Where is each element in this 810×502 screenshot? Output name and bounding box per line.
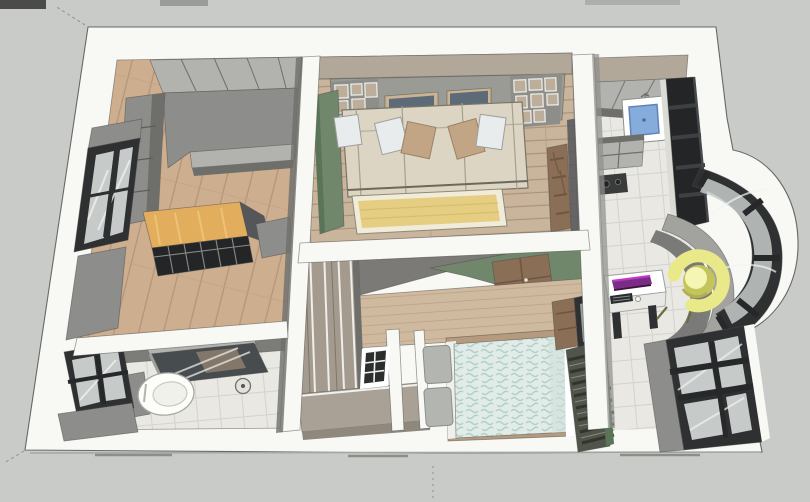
bed-pillow bbox=[424, 387, 454, 427]
floorplan-canvas bbox=[0, 0, 810, 502]
small-grid-window bbox=[360, 346, 390, 389]
kitchen bbox=[594, 55, 708, 232]
living-room bbox=[302, 53, 580, 243]
marble-door-column bbox=[547, 144, 571, 232]
bed-pillow bbox=[423, 345, 453, 384]
bedroom-marble-column bbox=[552, 298, 578, 350]
bedroom bbox=[296, 235, 614, 452]
kitchen-base-cabinets bbox=[598, 134, 644, 170]
southeast-window bbox=[644, 324, 770, 452]
floorplan-render bbox=[0, 0, 810, 502]
floor-drain bbox=[236, 379, 251, 394]
sofa bbox=[334, 102, 528, 197]
yellow-rug bbox=[352, 189, 507, 234]
mouse bbox=[635, 296, 640, 301]
kitchen-soffit bbox=[594, 55, 688, 82]
